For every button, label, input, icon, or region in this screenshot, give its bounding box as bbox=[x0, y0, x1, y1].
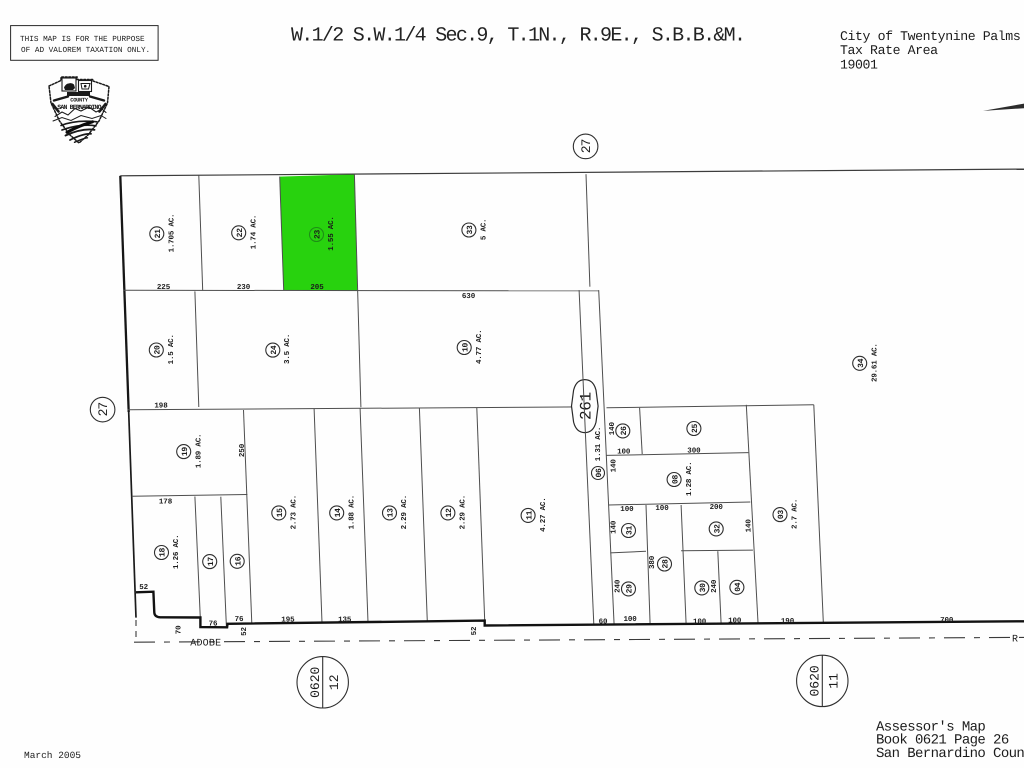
svg-text:2.7 AC.: 2.7 AC. bbox=[791, 499, 800, 529]
svg-text:195: 195 bbox=[281, 616, 295, 625]
svg-text:06: 06 bbox=[595, 468, 604, 478]
svg-text:1.5 AC.: 1.5 AC. bbox=[167, 334, 176, 364]
svg-text:34: 34 bbox=[857, 358, 866, 368]
svg-text:28: 28 bbox=[662, 559, 671, 569]
svg-text:33: 33 bbox=[466, 225, 475, 235]
svg-text:City of Twentynine Palms: City of Twentynine Palms bbox=[840, 29, 1020, 44]
svg-text:2.29 AC.: 2.29 AC. bbox=[459, 495, 468, 529]
svg-text:100: 100 bbox=[655, 504, 669, 513]
svg-text:19001: 19001 bbox=[840, 57, 878, 72]
svg-text:16: 16 bbox=[234, 556, 243, 566]
svg-text:700: 700 bbox=[940, 616, 954, 625]
svg-text:300: 300 bbox=[687, 447, 701, 456]
svg-text:11: 11 bbox=[525, 510, 534, 520]
svg-text:31: 31 bbox=[626, 526, 635, 536]
svg-text:4.77 AC.: 4.77 AC. bbox=[475, 330, 484, 364]
svg-text:10: 10 bbox=[461, 343, 470, 353]
svg-text:3.5 AC.: 3.5 AC. bbox=[283, 334, 292, 364]
svg-text:1.74 AC.: 1.74 AC. bbox=[249, 215, 258, 249]
svg-text:R: R bbox=[1012, 635, 1018, 646]
svg-text:29: 29 bbox=[626, 584, 635, 594]
svg-text:17: 17 bbox=[207, 557, 216, 567]
svg-text:COUNTY: COUNTY bbox=[70, 97, 89, 104]
svg-text:198: 198 bbox=[154, 402, 168, 411]
svg-text:2.73 AC.: 2.73 AC. bbox=[290, 495, 299, 529]
svg-text:19: 19 bbox=[181, 447, 190, 457]
svg-text:230: 230 bbox=[237, 283, 251, 292]
svg-text:100: 100 bbox=[728, 617, 742, 626]
svg-text:26: 26 bbox=[620, 426, 629, 436]
svg-text:225: 225 bbox=[157, 283, 171, 292]
svg-text:250: 250 bbox=[238, 443, 247, 457]
svg-text:ADOBE: ADOBE bbox=[190, 638, 221, 649]
svg-text:100: 100 bbox=[620, 505, 634, 514]
svg-text:15: 15 bbox=[276, 508, 285, 518]
svg-text:52: 52 bbox=[240, 627, 249, 636]
svg-text:200: 200 bbox=[710, 503, 724, 512]
svg-text:60: 60 bbox=[599, 618, 608, 627]
svg-text:32: 32 bbox=[713, 524, 722, 534]
svg-text:30: 30 bbox=[699, 583, 708, 593]
svg-text:1.55 AC.: 1.55 AC. bbox=[327, 216, 336, 250]
svg-text:76: 76 bbox=[209, 620, 218, 629]
svg-text:205: 205 bbox=[310, 283, 324, 292]
svg-text:140: 140 bbox=[610, 520, 619, 534]
svg-text:14: 14 bbox=[334, 508, 343, 518]
svg-text:1.31 AC.: 1.31 AC. bbox=[594, 427, 603, 461]
svg-text:03: 03 bbox=[777, 510, 786, 520]
svg-text:March 2005: March 2005 bbox=[24, 750, 81, 761]
svg-text:4.27 AC.: 4.27 AC. bbox=[539, 497, 548, 531]
svg-text:29.61 AC.: 29.61 AC. bbox=[870, 343, 879, 382]
svg-text:22: 22 bbox=[236, 228, 245, 238]
svg-text:THIS MAP IS FOR THE PURPOSE: THIS MAP IS FOR THE PURPOSE bbox=[20, 35, 145, 44]
svg-text:261: 261 bbox=[578, 392, 596, 420]
svg-text:140: 140 bbox=[610, 459, 619, 473]
svg-text:18: 18 bbox=[159, 548, 168, 558]
svg-text:5 AC.: 5 AC. bbox=[479, 219, 488, 241]
svg-text:178: 178 bbox=[159, 498, 173, 507]
svg-text:1.26 AC.: 1.26 AC. bbox=[172, 535, 181, 569]
svg-text:04: 04 bbox=[734, 582, 743, 592]
svg-text:08: 08 bbox=[671, 475, 680, 485]
svg-text:240: 240 bbox=[710, 579, 719, 593]
svg-text:240: 240 bbox=[614, 579, 623, 593]
svg-text:135: 135 bbox=[338, 616, 352, 625]
svg-text:2.29 AC.: 2.29 AC. bbox=[400, 495, 409, 529]
svg-text:25: 25 bbox=[691, 424, 700, 434]
svg-text:380: 380 bbox=[648, 555, 657, 569]
svg-text:13: 13 bbox=[387, 508, 396, 518]
svg-text:1.28 AC.: 1.28 AC. bbox=[685, 462, 694, 496]
svg-text:52: 52 bbox=[470, 626, 479, 635]
svg-text:OF AD VALOREM TAXATION ONLY.: OF AD VALOREM TAXATION ONLY. bbox=[21, 46, 150, 55]
svg-text:100: 100 bbox=[693, 617, 707, 626]
svg-text:52: 52 bbox=[139, 583, 148, 592]
svg-text:11: 11 bbox=[827, 673, 842, 689]
svg-text:23: 23 bbox=[314, 230, 323, 240]
svg-text:1.705 AC.: 1.705 AC. bbox=[168, 214, 177, 253]
svg-text:27: 27 bbox=[579, 139, 594, 153]
svg-text:630: 630 bbox=[462, 292, 476, 301]
svg-text:24: 24 bbox=[270, 345, 279, 355]
svg-text:100: 100 bbox=[617, 448, 631, 457]
svg-text:100: 100 bbox=[623, 615, 637, 624]
svg-text:Tax Rate Area: Tax Rate Area bbox=[840, 43, 938, 58]
svg-text:0620: 0620 bbox=[308, 667, 323, 698]
svg-text:27: 27 bbox=[96, 403, 111, 417]
svg-text:0620: 0620 bbox=[808, 665, 823, 696]
svg-text:76: 76 bbox=[235, 615, 244, 624]
svg-text:12: 12 bbox=[327, 674, 342, 690]
svg-text:21: 21 bbox=[154, 229, 163, 239]
svg-text:W.1/2 S.W.1/4 Sec.9, T.1N., R.: W.1/2 S.W.1/4 Sec.9, T.1N., R.9E., S.B.B… bbox=[291, 25, 744, 48]
svg-text:140: 140 bbox=[744, 519, 753, 533]
svg-text:20: 20 bbox=[154, 345, 163, 355]
svg-text:12: 12 bbox=[445, 508, 454, 518]
svg-text:San Bernardino County: San Bernardino County bbox=[876, 746, 1024, 762]
svg-text:70: 70 bbox=[175, 625, 184, 634]
svg-text:1.88 AC.: 1.88 AC. bbox=[347, 495, 356, 529]
svg-text:140: 140 bbox=[608, 422, 617, 436]
svg-text:1.89 AC.: 1.89 AC. bbox=[194, 434, 203, 468]
svg-text:190: 190 bbox=[781, 617, 795, 626]
